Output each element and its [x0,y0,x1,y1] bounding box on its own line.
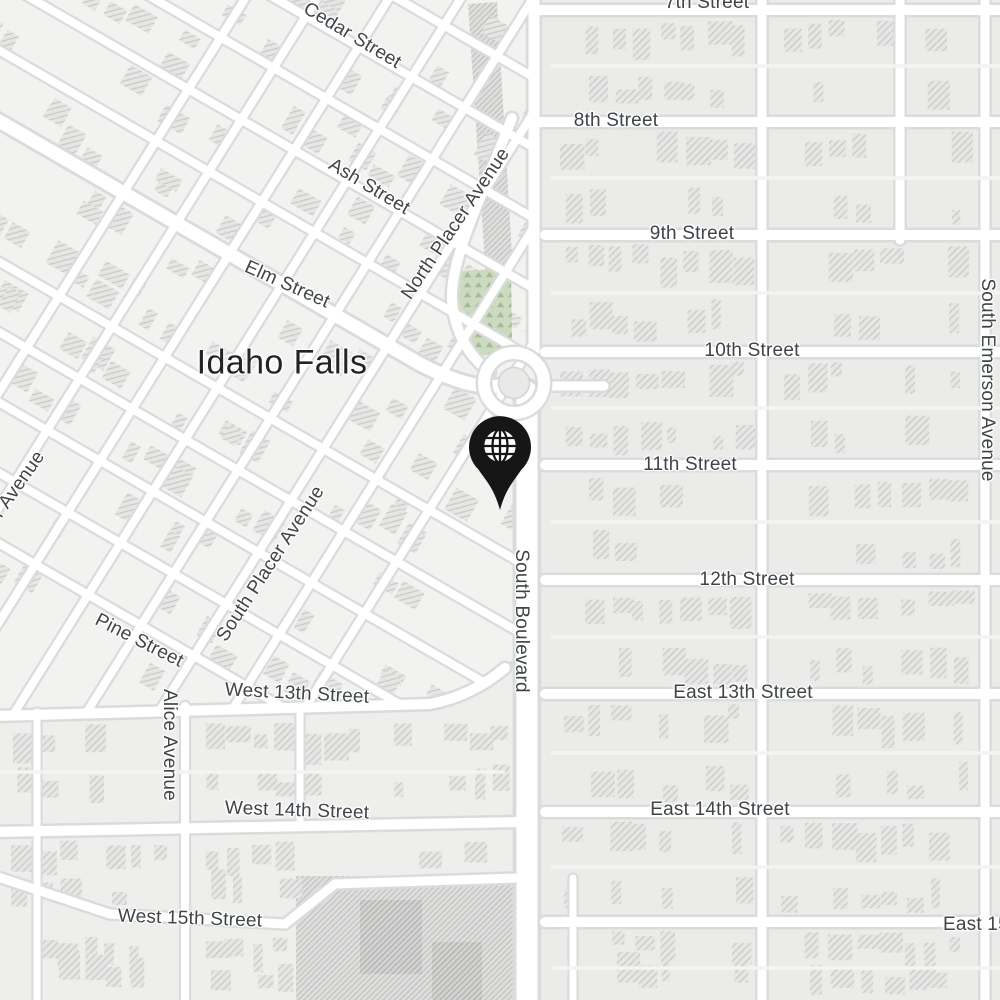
street-label-12th-street: 12th Street [699,569,794,591]
street-label-8th-street: 8th Street [574,110,658,132]
street-label-east-13th-street: East 13th Street [673,682,812,704]
street-label-east-14th-street: East 14th Street [650,799,789,821]
street-label-south-emerson-avenue: South Emerson Avenue [976,278,998,481]
city-label: Idaho Falls [197,344,368,383]
map-canvas[interactable]: Cedar Street 7th Street 8th Street Ash S… [0,0,1000,1000]
globe-icon [484,430,517,463]
street-label-south-boulevard: South Boulevard [510,549,532,693]
street-label-11th-street: 11th Street [643,454,737,476]
street-label-9th-street: 9th Street [650,223,734,245]
street-label-10th-street: 10th Street [704,340,799,362]
street-label-east-15th-street: East 15th Street [943,914,1000,936]
location-pin[interactable] [460,402,540,514]
street-label-alice-avenue: Alice Avenue [158,689,180,801]
street-label-7th-street: 7th Street [665,0,749,14]
